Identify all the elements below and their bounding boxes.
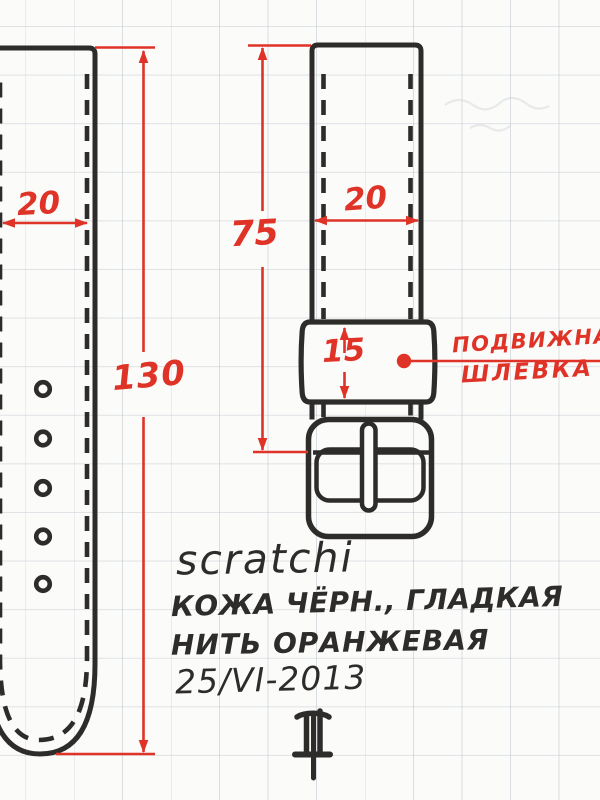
buckle-hole <box>36 481 50 495</box>
buckle-holes <box>36 382 50 591</box>
buckle-hole <box>36 432 50 446</box>
buckle-hole <box>36 530 50 544</box>
buckle-hole <box>36 577 50 591</box>
left-strap-outline <box>0 48 95 754</box>
strap-stub-stitch-ticks <box>324 404 411 417</box>
dim-label-keeper-height: 15 <box>321 335 366 368</box>
buckle <box>309 420 432 537</box>
maker-mark-icon <box>295 711 330 778</box>
dim-label-right-strap-length: 75 <box>229 216 279 254</box>
left-strap <box>0 48 95 754</box>
callout-leader-dot <box>397 354 411 368</box>
buckle-hole <box>36 382 50 396</box>
buckle-prong <box>362 424 376 511</box>
dim-label-right-strap-width: 20 <box>343 183 388 217</box>
faint-pencil-smudge <box>445 98 549 131</box>
dim-label-left-strap-length: 130 <box>111 356 188 396</box>
right-strap <box>301 45 435 537</box>
thread-note: НИТЬ ОРАНЖЕВАЯ <box>171 626 490 660</box>
left-strap-stitching <box>0 74 87 740</box>
date-note: 25/VI-2013 <box>175 661 367 699</box>
dim-label-left-strap-width: 20 <box>16 188 61 221</box>
brand-note: scratchi <box>176 537 355 581</box>
graph-paper-sheet: 20 130 75 20 15 ПОДВИЖНАЯ ШЛЕВКА scratch… <box>0 0 600 800</box>
